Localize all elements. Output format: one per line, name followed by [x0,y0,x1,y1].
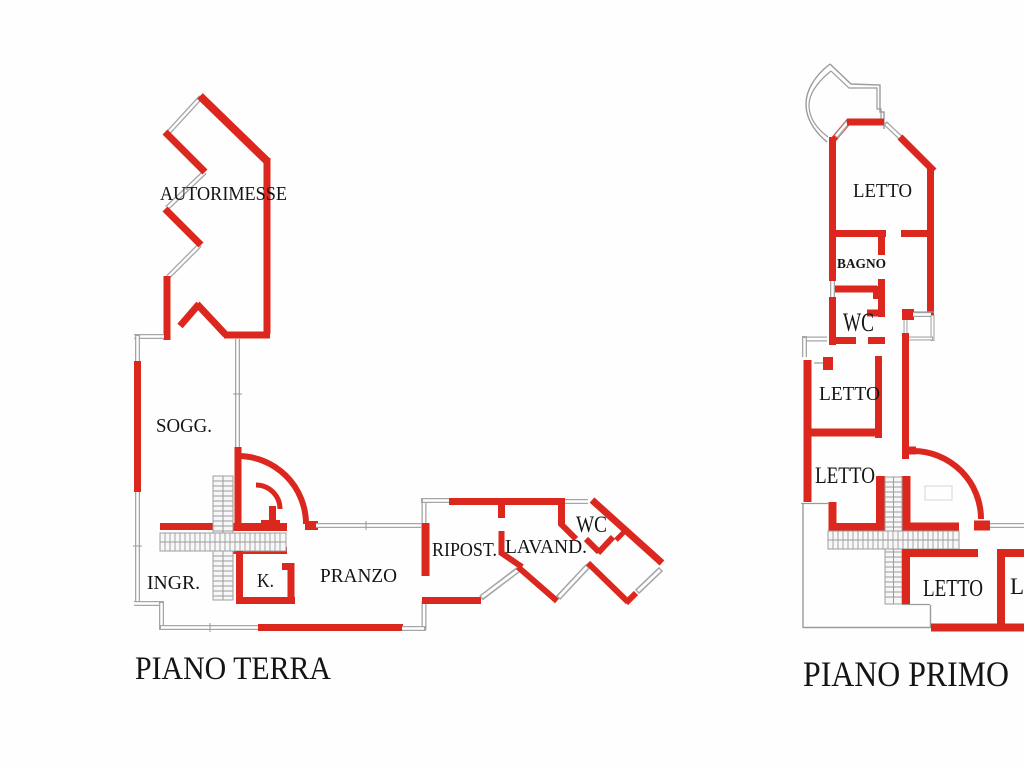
svg-text:PIANO TERRA: PIANO TERRA [135,651,331,687]
svg-text:LETTO: LETTO [1010,574,1024,599]
svg-text:PRANZO: PRANZO [320,565,397,587]
svg-text:LETTO: LETTO [815,463,875,488]
svg-text:SOGG.: SOGG. [156,415,212,437]
svg-text:INGR.: INGR. [147,572,200,594]
svg-text:LETTO: LETTO [853,180,912,202]
svg-text:LETTO: LETTO [923,576,983,602]
svg-text:PIANO PRIMO: PIANO PRIMO [803,654,1009,694]
svg-text:RIPOST.: RIPOST. [432,539,497,561]
svg-text:WC: WC [576,512,607,537]
svg-text:AUTORIMESSE: AUTORIMESSE [160,183,287,205]
svg-text:WC: WC [843,308,874,337]
svg-text:K.: K. [257,570,274,592]
svg-text:LETTO: LETTO [819,383,880,405]
svg-text:BAGNO: BAGNO [837,257,886,272]
